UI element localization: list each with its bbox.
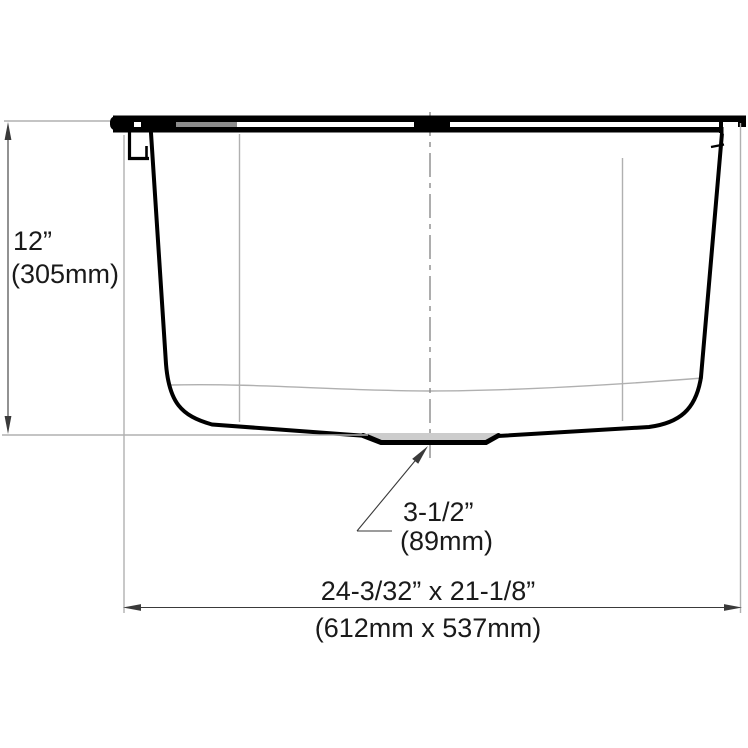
overall-dimension: 24-3/32” x 21-1/8” (612mm x 537mm) [123,123,742,643]
height-arrow-up [5,122,12,140]
sink-elevation-view: 12” (305mm) 24-3/32” x 21-1/8” (612mm x … [0,0,748,748]
drain-label-metric: (89mm) [400,526,493,556]
drain-dimension: 3-1/2” (89mm) [357,446,493,556]
height-label-imperial: 12” [13,226,52,256]
rim-faucet-hole-section [414,121,450,130]
height-arrow-down [5,416,12,434]
projection-lines [170,134,703,422]
bowl-profile [151,133,722,442]
sink-rim [110,116,747,161]
rim-stripe-dash-left-light [176,122,237,127]
rim-right-underside-gap [724,127,747,134]
sink-outline [151,133,722,443]
overall-label-imperial: 24-3/32” x 21-1/8” [321,576,536,606]
rim-stripe-dash-left [141,122,176,127]
left-mounting-clip [128,131,149,160]
overall-label-metric: (612mm x 537mm) [315,613,542,643]
rim-left-end-cap [110,116,137,131]
rim-right-step [719,122,723,133]
drain-recess-fill [366,433,499,441]
overall-arrow-right [724,604,742,611]
sink-technical-drawing: 12” (305mm) 24-3/32” x 21-1/8” (612mm x … [0,0,748,748]
height-label-metric: (305mm) [11,259,119,289]
overall-arrow-left [123,604,141,611]
drain-label-imperial: 3-1/2” [403,497,474,527]
